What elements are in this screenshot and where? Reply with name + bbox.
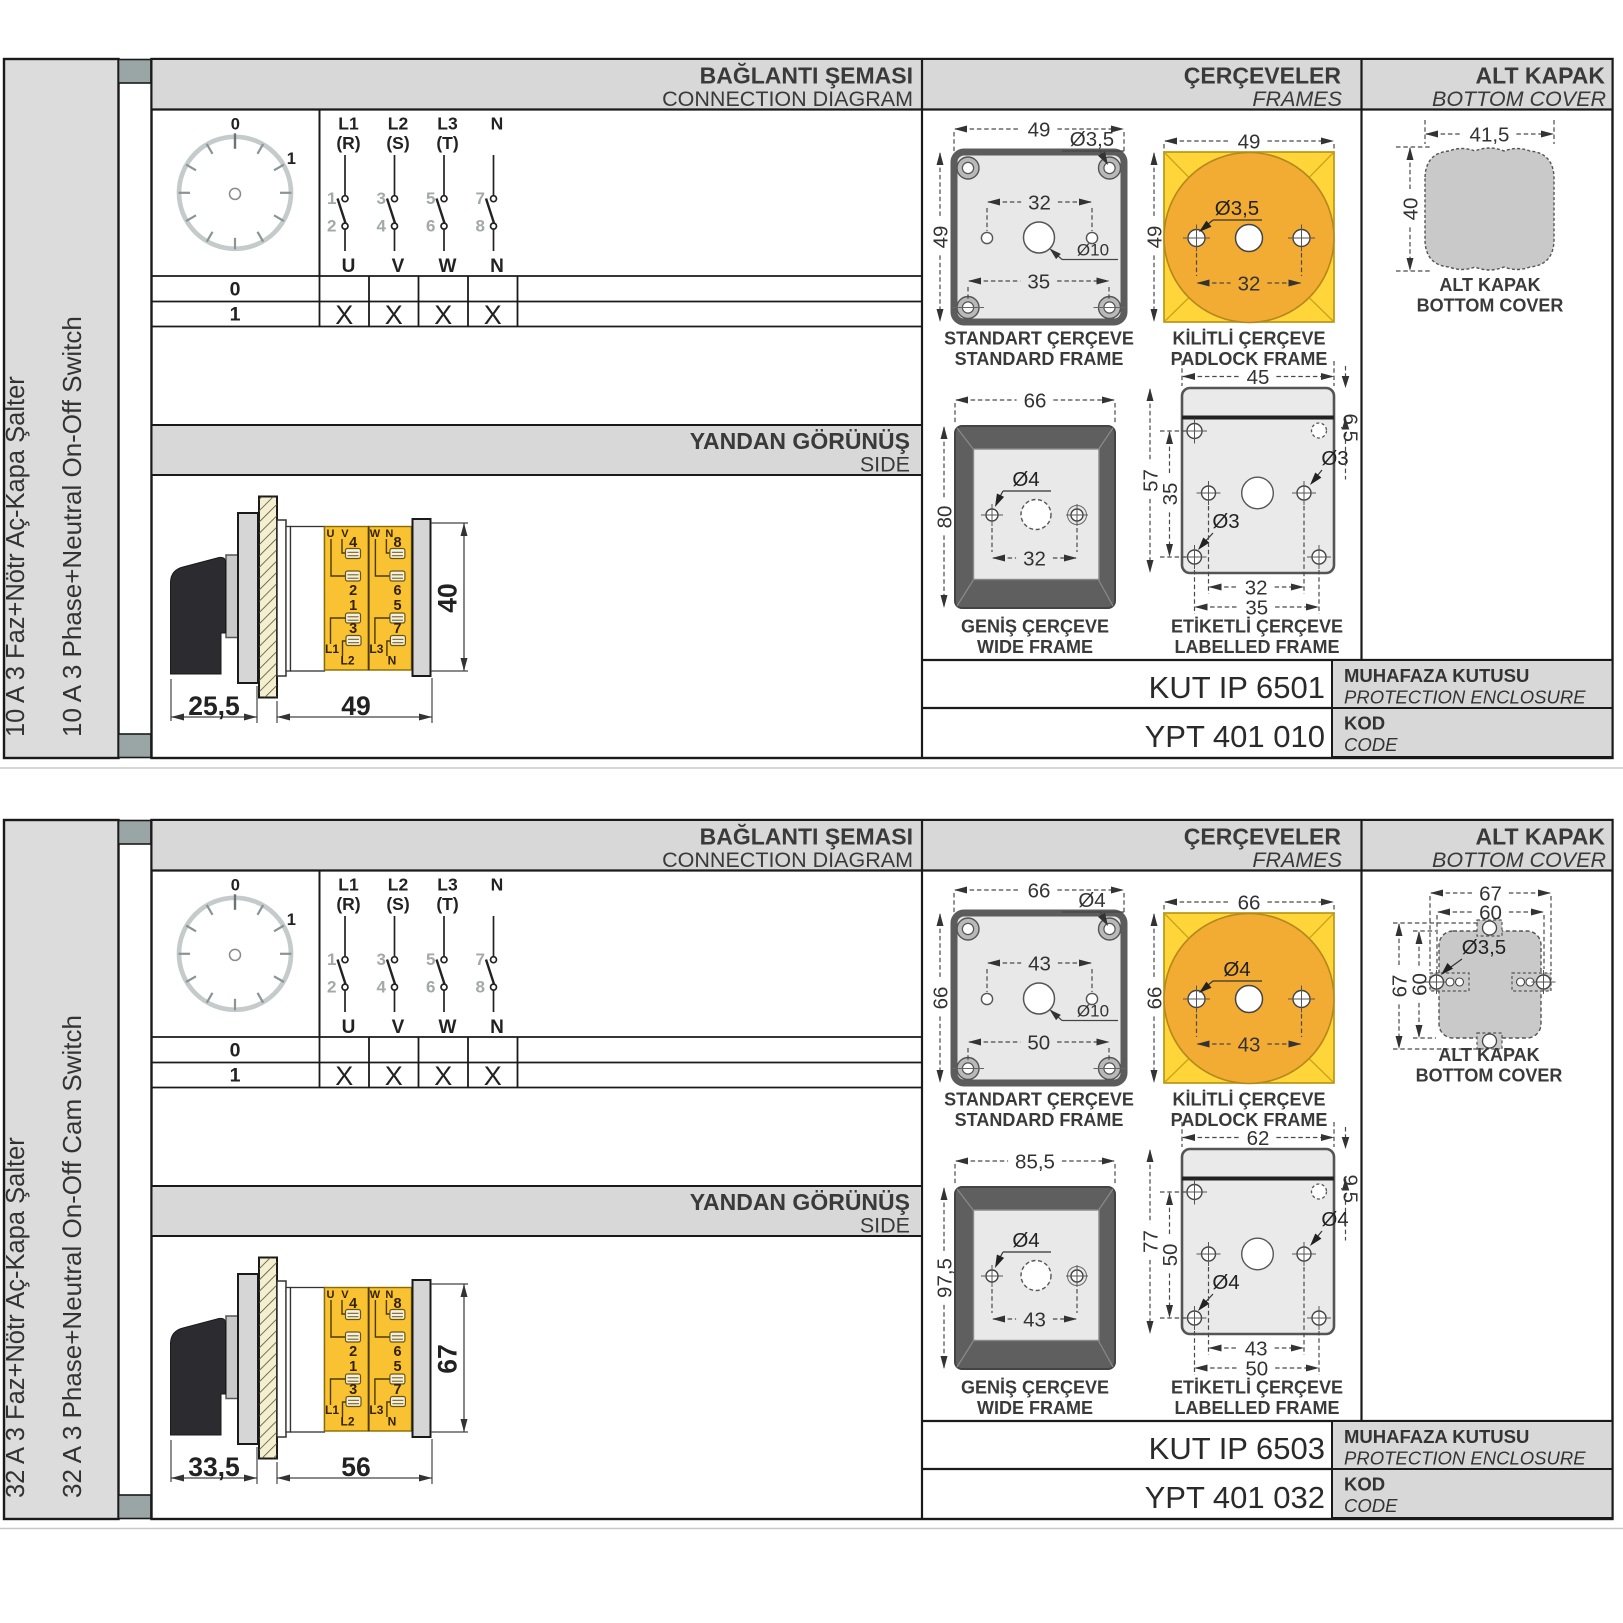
svg-text:Ø3: Ø3 (1212, 510, 1239, 533)
svg-text:U: U (342, 1017, 356, 1038)
svg-text:PROTECTION ENCLOSURE: PROTECTION ENCLOSURE (1344, 687, 1586, 708)
svg-text:40: 40 (1399, 198, 1422, 221)
svg-text:BOTTOM COVER: BOTTOM COVER (1417, 296, 1564, 316)
svg-text:5: 5 (394, 598, 402, 614)
svg-text:6: 6 (426, 978, 435, 997)
svg-text:1: 1 (349, 1359, 357, 1375)
svg-text:L2: L2 (388, 875, 409, 895)
svg-text:FRAMES: FRAMES (1252, 87, 1342, 111)
svg-text:(T): (T) (436, 133, 458, 153)
svg-text:10 A 3 Faz+Nötr Aç-Kapa Şalter: 10 A 3 Faz+Nötr Aç-Kapa Şalter (2, 376, 30, 737)
svg-text:LABELLED FRAME: LABELLED FRAME (1175, 1398, 1340, 1418)
svg-text:32: 32 (1238, 272, 1261, 295)
svg-text:KUT IP 6503: KUT IP 6503 (1149, 1431, 1325, 1466)
svg-text:Ø4: Ø4 (1223, 958, 1250, 981)
svg-text:50: 50 (1027, 1031, 1050, 1054)
svg-text:25,5: 25,5 (188, 691, 240, 721)
svg-text:WIDE FRAME: WIDE FRAME (977, 637, 1093, 657)
svg-text:6: 6 (426, 217, 435, 236)
svg-text:V: V (341, 1289, 349, 1301)
svg-text:62: 62 (1247, 1127, 1270, 1150)
svg-text:Ø4: Ø4 (1212, 1271, 1239, 1294)
svg-text:GENİŞ ÇERÇEVE: GENİŞ ÇERÇEVE (961, 1378, 1109, 1398)
svg-text:L3: L3 (437, 114, 458, 134)
svg-text:33,5: 33,5 (188, 1452, 240, 1482)
svg-text:32: 32 (1028, 191, 1051, 214)
svg-text:X: X (335, 300, 353, 330)
svg-text:5: 5 (394, 1359, 402, 1375)
svg-text:KOD: KOD (1344, 1474, 1385, 1495)
svg-text:L3: L3 (437, 875, 458, 895)
svg-text:STANDART ÇERÇEVE: STANDART ÇERÇEVE (944, 329, 1134, 349)
svg-text:X: X (385, 300, 403, 330)
svg-text:SIDE: SIDE (860, 453, 910, 477)
svg-text:BOTTOM COVER: BOTTOM COVER (1432, 87, 1606, 111)
svg-text:BOTTOM COVER: BOTTOM COVER (1432, 848, 1606, 872)
svg-text:CODE: CODE (1344, 1495, 1398, 1516)
svg-text:W: W (439, 1017, 457, 1038)
svg-text:1: 1 (230, 304, 241, 326)
svg-text:2: 2 (327, 978, 336, 997)
svg-text:1: 1 (327, 189, 336, 208)
svg-text:Ø4: Ø4 (1078, 889, 1105, 912)
svg-text:2: 2 (349, 1344, 357, 1360)
svg-text:43: 43 (1028, 952, 1051, 975)
svg-text:0: 0 (230, 279, 241, 301)
svg-text:3: 3 (377, 950, 386, 969)
svg-text:3: 3 (377, 189, 386, 208)
svg-text:YANDAN GÖRÜNÜŞ: YANDAN GÖRÜNÜŞ (690, 1189, 910, 1215)
svg-text:X: X (434, 300, 452, 330)
svg-text:YPT 401 010: YPT 401 010 (1145, 719, 1325, 754)
svg-text:0: 0 (230, 1040, 241, 1062)
svg-text:56: 56 (341, 1452, 370, 1482)
svg-text:(R): (R) (336, 133, 360, 153)
svg-text:5: 5 (426, 950, 435, 969)
svg-text:STANDARD FRAME: STANDARD FRAME (955, 1110, 1124, 1130)
svg-text:7: 7 (476, 189, 485, 208)
svg-text:CONNECTION DIAGRAM: CONNECTION DIAGRAM (662, 848, 913, 872)
svg-text:CODE: CODE (1344, 734, 1398, 755)
svg-text:2: 2 (349, 583, 357, 599)
svg-text:4: 4 (377, 217, 387, 236)
svg-text:N: N (385, 1289, 393, 1301)
svg-text:7: 7 (476, 950, 485, 969)
svg-text:N: N (490, 256, 504, 277)
svg-text:35: 35 (1027, 270, 1050, 293)
svg-text:ÇERÇEVELER: ÇERÇEVELER (1184, 824, 1342, 850)
svg-text:X: X (434, 1061, 452, 1091)
svg-text:L3: L3 (369, 1403, 383, 1417)
svg-text:41,5: 41,5 (1470, 123, 1510, 146)
svg-text:L3: L3 (369, 642, 383, 656)
svg-text:KİLİTLİ ÇERÇEVE: KİLİTLİ ÇERÇEVE (1172, 329, 1325, 349)
svg-text:49: 49 (1028, 118, 1051, 141)
svg-text:66: 66 (1238, 891, 1261, 914)
svg-text:66: 66 (1028, 879, 1051, 902)
svg-text:0: 0 (231, 877, 240, 895)
svg-text:8: 8 (476, 978, 485, 997)
svg-text:49: 49 (1238, 130, 1261, 153)
svg-text:ALT KAPAK: ALT KAPAK (1476, 824, 1606, 850)
svg-text:PROTECTION ENCLOSURE: PROTECTION ENCLOSURE (1344, 1448, 1586, 1469)
svg-text:32 A 3 Phase+Neutral On-Off Ca: 32 A 3 Phase+Neutral On-Off Cam Switch (57, 1015, 87, 1498)
svg-text:Ø10: Ø10 (1077, 241, 1109, 260)
svg-text:W: W (370, 1289, 381, 1301)
svg-text:49: 49 (1143, 226, 1166, 249)
svg-text:V: V (392, 1017, 405, 1038)
svg-text:Ø10: Ø10 (1077, 1002, 1109, 1021)
svg-text:V: V (392, 256, 405, 277)
svg-text:GENİŞ ÇERÇEVE: GENİŞ ÇERÇEVE (961, 617, 1109, 637)
svg-text:9,5: 9,5 (1339, 1175, 1362, 1204)
svg-text:L1: L1 (338, 875, 359, 895)
svg-text:6: 6 (394, 583, 402, 599)
svg-text:3: 3 (349, 1382, 357, 1398)
svg-text:49: 49 (341, 691, 370, 721)
svg-text:ÇERÇEVELER: ÇERÇEVELER (1184, 63, 1342, 89)
svg-text:Ø4: Ø4 (1012, 468, 1039, 491)
svg-text:4: 4 (377, 978, 387, 997)
svg-text:1: 1 (349, 598, 357, 614)
svg-text:Ø3,5: Ø3,5 (1462, 936, 1506, 959)
svg-text:L2: L2 (388, 114, 409, 134)
svg-text:ETİKETLİ ÇERÇEVE: ETİKETLİ ÇERÇEVE (1171, 617, 1343, 637)
svg-text:7: 7 (394, 621, 402, 637)
svg-text:45: 45 (1247, 366, 1270, 389)
svg-text:SIDE: SIDE (860, 1214, 910, 1238)
svg-text:1: 1 (287, 911, 296, 929)
svg-text:ALT KAPAK: ALT KAPAK (1439, 275, 1540, 295)
svg-text:50: 50 (1159, 1244, 1182, 1267)
svg-text:43: 43 (1023, 1308, 1046, 1331)
svg-text:STANDART ÇERÇEVE: STANDART ÇERÇEVE (944, 1090, 1134, 1110)
svg-text:N: N (490, 1017, 504, 1038)
svg-text:BOTTOM COVER: BOTTOM COVER (1416, 1066, 1563, 1086)
svg-text:L1: L1 (325, 1403, 339, 1417)
svg-text:3: 3 (349, 621, 357, 637)
svg-text:(S): (S) (386, 133, 409, 153)
svg-text:V: V (341, 528, 349, 540)
svg-text:LABELLED FRAME: LABELLED FRAME (1175, 637, 1340, 657)
svg-text:32 A 3 Faz+Nötr Aç-Kapa Şalter: 32 A 3 Faz+Nötr Aç-Kapa Şalter (2, 1137, 30, 1498)
svg-text:1: 1 (327, 950, 336, 969)
svg-text:ETİKETLİ ÇERÇEVE: ETİKETLİ ÇERÇEVE (1171, 1378, 1343, 1398)
svg-text:KİLİTLİ ÇERÇEVE: KİLİTLİ ÇERÇEVE (1172, 1090, 1325, 1110)
svg-text:N: N (388, 1415, 397, 1429)
svg-text:BAĞLANTI ŞEMASI: BAĞLANTI ŞEMASI (700, 62, 913, 89)
svg-text:CONNECTION DIAGRAM: CONNECTION DIAGRAM (662, 87, 913, 111)
svg-text:6,5: 6,5 (1339, 414, 1362, 443)
svg-text:Ø4: Ø4 (1321, 1208, 1348, 1231)
svg-text:66: 66 (1024, 389, 1047, 412)
svg-text:MUHAFAZA KUTUSU: MUHAFAZA KUTUSU (1344, 1426, 1529, 1447)
svg-text:2: 2 (327, 217, 336, 236)
svg-text:X: X (335, 1061, 353, 1091)
svg-text:32: 32 (1023, 547, 1046, 570)
svg-text:KUT IP 6501: KUT IP 6501 (1149, 670, 1325, 705)
svg-text:40: 40 (433, 583, 463, 612)
svg-text:35: 35 (1159, 483, 1182, 506)
svg-text:43: 43 (1238, 1033, 1261, 1056)
svg-text:49: 49 (929, 226, 952, 249)
svg-text:ALT KAPAK: ALT KAPAK (1476, 63, 1606, 89)
svg-text:KOD: KOD (1344, 713, 1385, 734)
svg-text:W: W (370, 528, 381, 540)
svg-text:6: 6 (394, 1344, 402, 1360)
svg-text:U: U (327, 1289, 335, 1301)
svg-text:YPT 401 032: YPT 401 032 (1145, 1480, 1325, 1515)
svg-text:N: N (388, 654, 397, 668)
svg-text:7: 7 (394, 1382, 402, 1398)
svg-text:U: U (327, 528, 335, 540)
svg-text:WIDE FRAME: WIDE FRAME (977, 1398, 1093, 1418)
svg-text:N: N (491, 114, 504, 134)
svg-text:Ø4: Ø4 (1012, 1229, 1039, 1252)
svg-text:1: 1 (287, 150, 296, 168)
svg-text:1: 1 (230, 1065, 241, 1087)
svg-text:Ø3: Ø3 (1321, 447, 1348, 470)
svg-text:67: 67 (433, 1344, 463, 1373)
svg-text:85,5: 85,5 (1015, 1150, 1055, 1173)
svg-text:66: 66 (1143, 987, 1166, 1010)
svg-text:MUHAFAZA KUTUSU: MUHAFAZA KUTUSU (1344, 665, 1529, 686)
svg-text:N: N (491, 875, 504, 895)
svg-text:80: 80 (933, 506, 956, 529)
svg-text:0: 0 (231, 116, 240, 134)
svg-text:66: 66 (929, 987, 952, 1010)
svg-text:N: N (385, 528, 393, 540)
svg-text:L1: L1 (325, 642, 339, 656)
svg-text:W: W (439, 256, 457, 277)
svg-text:L1: L1 (338, 114, 359, 134)
svg-text:Ø3,5: Ø3,5 (1070, 128, 1114, 151)
svg-text:X: X (385, 1061, 403, 1091)
svg-text:STANDARD FRAME: STANDARD FRAME (955, 349, 1124, 369)
svg-text:5: 5 (426, 189, 435, 208)
svg-text:FRAMES: FRAMES (1252, 848, 1342, 872)
svg-text:8: 8 (476, 217, 485, 236)
svg-text:10 A 3 Phase+Neutral On-Off Sw: 10 A 3 Phase+Neutral On-Off Switch (57, 316, 87, 737)
svg-text:X: X (484, 1061, 502, 1091)
svg-text:X: X (484, 300, 502, 330)
svg-text:ALT KAPAK: ALT KAPAK (1438, 1045, 1539, 1065)
svg-text:BAĞLANTI ŞEMASI: BAĞLANTI ŞEMASI (700, 823, 913, 850)
svg-text:U: U (342, 256, 356, 277)
svg-text:60: 60 (1408, 973, 1431, 996)
svg-text:60: 60 (1479, 901, 1502, 924)
svg-text:(R): (R) (336, 894, 360, 914)
svg-text:(S): (S) (386, 894, 409, 914)
svg-text:YANDAN GÖRÜNÜŞ: YANDAN GÖRÜNÜŞ (690, 428, 910, 454)
svg-text:(T): (T) (436, 894, 458, 914)
svg-text:97,5: 97,5 (933, 1258, 956, 1298)
svg-text:Ø3,5: Ø3,5 (1215, 197, 1259, 220)
